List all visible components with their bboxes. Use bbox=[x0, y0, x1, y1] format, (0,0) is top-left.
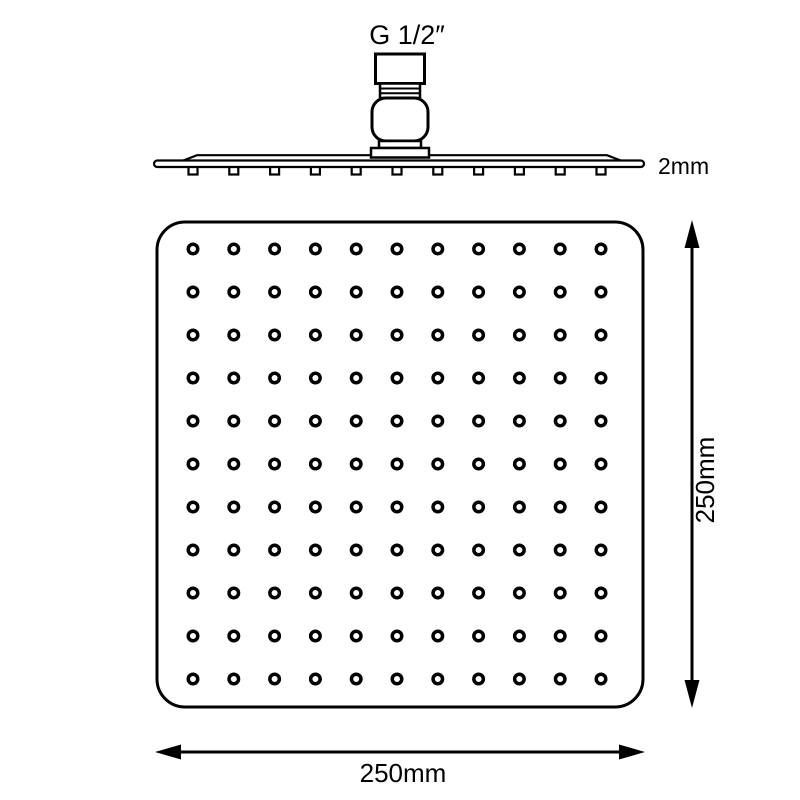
connector-base-flange bbox=[371, 148, 429, 158]
nozzle-hole bbox=[188, 373, 198, 383]
nozzle-hole bbox=[555, 416, 565, 426]
nozzle-hole bbox=[229, 588, 239, 598]
nozzle-hole bbox=[433, 459, 443, 469]
nozzle-hole bbox=[188, 330, 198, 340]
nozzle-hole bbox=[351, 545, 361, 555]
nozzle-hole bbox=[515, 459, 525, 469]
nozzle-hole bbox=[596, 459, 606, 469]
nozzle-hole bbox=[351, 416, 361, 426]
nozzle-hole bbox=[311, 631, 321, 641]
nozzle-hole bbox=[555, 545, 565, 555]
nozzle-hole bbox=[474, 459, 484, 469]
nozzle-hole bbox=[596, 330, 606, 340]
nozzle-hole bbox=[311, 502, 321, 512]
nozzle-hole bbox=[392, 330, 402, 340]
nozzle-hole bbox=[555, 330, 565, 340]
arrow-up-icon bbox=[685, 220, 700, 248]
nozzle-hole bbox=[188, 459, 198, 469]
nozzle-hole bbox=[311, 416, 321, 426]
thread-size-label: G 1/2″ bbox=[369, 20, 445, 50]
nozzle-hole bbox=[474, 244, 484, 254]
nozzle-hole bbox=[555, 502, 565, 512]
nozzle-hole bbox=[229, 373, 239, 383]
nozzle-hole bbox=[555, 287, 565, 297]
nozzle-hole bbox=[229, 330, 239, 340]
nozzle-hole bbox=[515, 373, 525, 383]
nozzle-hole bbox=[229, 287, 239, 297]
nozzle-hole bbox=[433, 674, 443, 684]
nozzle-hole bbox=[392, 373, 402, 383]
nozzle-hole bbox=[392, 287, 402, 297]
nozzle-hole bbox=[229, 545, 239, 555]
nozzle-hole bbox=[515, 631, 525, 641]
nozzle-hole bbox=[555, 244, 565, 254]
nozzle-hole bbox=[188, 588, 198, 598]
nozzle-hole bbox=[270, 373, 280, 383]
connector-ball-joint bbox=[372, 98, 428, 141]
nozzle-hole bbox=[270, 631, 280, 641]
nozzle-hole bbox=[596, 373, 606, 383]
nozzle-hole bbox=[474, 631, 484, 641]
side-view: 2mm bbox=[154, 54, 709, 179]
nozzle-hole bbox=[433, 502, 443, 512]
connector-collar bbox=[380, 84, 420, 99]
nozzle-hole bbox=[311, 287, 321, 297]
nozzle-hole bbox=[188, 244, 198, 254]
nozzle-hole bbox=[515, 502, 525, 512]
plate-thickness-label: 2mm bbox=[658, 153, 709, 179]
nozzle-hole bbox=[270, 287, 280, 297]
nozzle-hole bbox=[229, 244, 239, 254]
nozzle-hole bbox=[596, 287, 606, 297]
nozzle-hole bbox=[433, 373, 443, 383]
nozzle-hole bbox=[270, 588, 280, 598]
nozzle-hole bbox=[188, 674, 198, 684]
nozzle-hole bbox=[351, 674, 361, 684]
height-dimension: 250mm bbox=[685, 220, 721, 708]
nozzle-hole bbox=[515, 330, 525, 340]
arrow-left-icon bbox=[155, 745, 181, 760]
width-dimension-label: 250mm bbox=[360, 758, 447, 788]
arrow-down-icon bbox=[685, 680, 700, 708]
nozzle-hole bbox=[270, 416, 280, 426]
nozzle-hole bbox=[311, 545, 321, 555]
nozzle-hole bbox=[311, 674, 321, 684]
nozzle-hole bbox=[229, 674, 239, 684]
nozzle-hole bbox=[596, 588, 606, 598]
nozzle-hole bbox=[392, 416, 402, 426]
nozzle-hole bbox=[596, 631, 606, 641]
nozzle-hole bbox=[392, 545, 402, 555]
nozzle-hole bbox=[270, 545, 280, 555]
nozzle-hole bbox=[555, 373, 565, 383]
nozzle-hole bbox=[351, 588, 361, 598]
nozzle-hole bbox=[474, 373, 484, 383]
nozzle-hole bbox=[555, 588, 565, 598]
nozzle-hole bbox=[351, 244, 361, 254]
nozzle-hole bbox=[229, 631, 239, 641]
arrow-right-icon bbox=[619, 745, 645, 760]
nozzle-hole bbox=[555, 674, 565, 684]
nozzle-hole bbox=[474, 416, 484, 426]
nozzle-hole bbox=[270, 502, 280, 512]
connector-thread-pipe bbox=[376, 54, 425, 84]
nozzle-hole bbox=[188, 416, 198, 426]
nozzle-hole bbox=[351, 287, 361, 297]
nozzle-hole bbox=[392, 502, 402, 512]
nozzle-hole bbox=[392, 674, 402, 684]
nozzle-hole bbox=[229, 416, 239, 426]
nozzle-hole bbox=[311, 244, 321, 254]
nozzle-hole bbox=[555, 459, 565, 469]
width-dimension: 250mm bbox=[155, 745, 645, 789]
nozzle-hole bbox=[311, 330, 321, 340]
nozzle-hole bbox=[351, 502, 361, 512]
nozzle-hole bbox=[351, 373, 361, 383]
nozzle-hole bbox=[555, 631, 565, 641]
nozzle-hole bbox=[392, 631, 402, 641]
nozzle-hole bbox=[474, 502, 484, 512]
nozzle-hole bbox=[188, 502, 198, 512]
nozzle-hole bbox=[229, 502, 239, 512]
nozzle-hole bbox=[188, 631, 198, 641]
nozzle-hole bbox=[229, 459, 239, 469]
nozzle-hole bbox=[392, 459, 402, 469]
diagram-page: G 1/2″ 2mm 250mm bbox=[0, 0, 800, 800]
nozzle-hole bbox=[474, 674, 484, 684]
nozzle-hole bbox=[515, 545, 525, 555]
nozzle-hole bbox=[188, 287, 198, 297]
nozzle-hole bbox=[392, 244, 402, 254]
nozzle-hole bbox=[270, 330, 280, 340]
nozzle-hole bbox=[351, 631, 361, 641]
nozzle-hole bbox=[270, 244, 280, 254]
nozzle-hole bbox=[433, 416, 443, 426]
nozzle-hole bbox=[351, 330, 361, 340]
front-view bbox=[157, 222, 643, 707]
nozzle-hole bbox=[311, 373, 321, 383]
nozzle-hole bbox=[596, 502, 606, 512]
nozzle-hole bbox=[311, 588, 321, 598]
nozzle-hole bbox=[474, 545, 484, 555]
nozzle-hole bbox=[270, 674, 280, 684]
nozzle-hole bbox=[515, 416, 525, 426]
nozzle-hole bbox=[474, 588, 484, 598]
nozzle-hole bbox=[515, 588, 525, 598]
nozzle-hole bbox=[515, 674, 525, 684]
nozzle-hole bbox=[515, 244, 525, 254]
nozzle-hole bbox=[596, 674, 606, 684]
plate-profile bbox=[154, 161, 644, 168]
nozzle-hole bbox=[433, 287, 443, 297]
nozzle-hole bbox=[433, 545, 443, 555]
nozzle-hole bbox=[474, 330, 484, 340]
nozzle-hole bbox=[596, 244, 606, 254]
nozzle-hole bbox=[596, 416, 606, 426]
nozzle-hole bbox=[188, 545, 198, 555]
nozzle-hole bbox=[596, 545, 606, 555]
nozzle-hole bbox=[515, 287, 525, 297]
diagram-canvas: G 1/2″ 2mm 250mm bbox=[0, 0, 800, 800]
nozzle-hole bbox=[433, 244, 443, 254]
nozzle-hole bbox=[351, 459, 361, 469]
nozzle-hole bbox=[433, 330, 443, 340]
nozzle-hole bbox=[433, 631, 443, 641]
nozzle-hole bbox=[433, 588, 443, 598]
nozzle-hole bbox=[474, 287, 484, 297]
nozzle-hole bbox=[311, 459, 321, 469]
nozzle-hole bbox=[392, 588, 402, 598]
height-dimension-label: 250mm bbox=[690, 437, 720, 524]
nozzle-hole bbox=[270, 459, 280, 469]
